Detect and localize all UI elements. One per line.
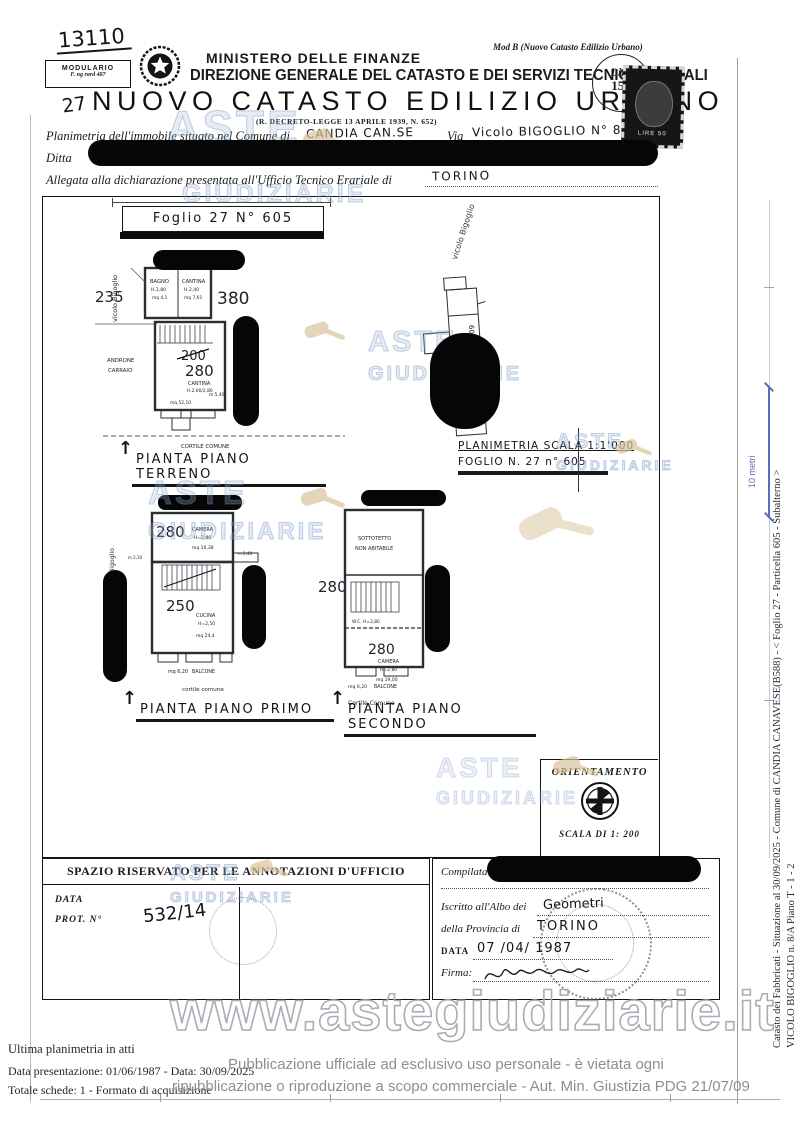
- handwritten-page-number: 27: [61, 92, 88, 117]
- ground-androne1: ANDRONE: [107, 358, 135, 364]
- redaction-blob: [430, 333, 500, 429]
- ground-room1-mq: mq 4,1: [152, 295, 168, 301]
- first-floor-plan: vicolo Bigoglio 280 CAMERA H=2,80 mq 16,…: [100, 495, 330, 710]
- data-label: DATA: [55, 895, 83, 905]
- compass-icon: [579, 780, 621, 822]
- plan-ref-line2: FOGLIO N. 27 n° 605: [458, 456, 634, 468]
- orientamento-label: ORIENTAMENTO: [541, 767, 658, 778]
- second-label-arrow: ↑: [330, 688, 345, 709]
- first-balcone: BALCONE: [192, 669, 215, 675]
- first-room1-h: H=2,80: [194, 535, 211, 541]
- ground-dim-left: 235: [95, 288, 124, 306]
- foglio-header-bar: [120, 232, 324, 239]
- ministry-title: MINISTERO DELLE FINANZE: [206, 50, 421, 66]
- ground-room2-mq: mq 7,61: [184, 295, 202, 301]
- sidebar-line1: Catasto dei Fabbricati - Situazione al 3…: [772, 56, 783, 1118]
- republic-emblem-icon: [138, 44, 182, 88]
- plan-reference-box: PLANIMETRIA SCALA 1:1'000 FOGLIO N. 27 n…: [458, 440, 634, 475]
- second-dim-left: 280: [318, 578, 347, 596]
- second-floor-label: PIANTA PIANO SECONDO: [344, 702, 536, 737]
- first-value2: 250: [166, 597, 195, 615]
- prot-value-handwritten: 532/14: [142, 900, 207, 928]
- ground-cortile: CORTILE COMUNE: [181, 444, 230, 450]
- ground-room3: CANTINA: [188, 381, 211, 387]
- modulario-sub: F. ng rard 487: [46, 72, 130, 78]
- scale-bar-label: 10 metri: [747, 428, 757, 488]
- second-wc: W.C. H=2,80: [352, 619, 380, 625]
- ground-floor-plan: vicolo Bigoglio 235 BAGNO H.2,80 mq 4,1 …: [95, 240, 355, 470]
- first-room1-mq: mq 16,38: [192, 545, 214, 551]
- second-floor-plan: 280 SOTTOTETTO NON ABITABILE W.C. H=2,80…: [318, 490, 518, 720]
- second-room: CAMERA: [378, 659, 400, 665]
- first-room2-mq: mq 24,4: [196, 633, 215, 639]
- ditta-label: Ditta: [46, 151, 72, 166]
- second-room-mq: mq 19,00: [376, 677, 398, 683]
- stamp-portrait: [634, 81, 673, 128]
- compilata-redaction: [487, 856, 701, 882]
- first-redaction-left: [103, 570, 127, 682]
- foglio-header-box: Foglio 27 N° 605: [122, 206, 324, 232]
- ground-dim-right: 380: [217, 289, 249, 309]
- second-attic1: SOTTOTETTO: [358, 536, 391, 542]
- ground-floor-label: PIANTA PIANO TERRENO: [132, 452, 326, 487]
- watermark-url: www.astegiudiziarie.it: [170, 978, 775, 1043]
- second-redaction-top: [361, 490, 446, 506]
- revenue-stamp: LIRE 50: [621, 65, 685, 149]
- first-cortile: cortile comune: [182, 687, 224, 693]
- allegata-label: Allegata alla dichiarazione presentata a…: [46, 173, 392, 188]
- mod-b-note: Mod B (Nuovo Catasto Edilizio Urbano): [493, 42, 643, 52]
- first-value1: 280: [156, 523, 185, 541]
- column-divider-line: [737, 58, 738, 1104]
- faint-office-stamp: [209, 897, 277, 965]
- first-redaction-right: [242, 565, 266, 649]
- footer-overlay1: Pubblicazione ufficiale ad esclusivo uso…: [228, 1056, 664, 1073]
- first-room2-h: H=2,50: [198, 621, 215, 627]
- stamp-text: LIRE 50: [624, 130, 680, 137]
- footer-line1: Ultima planimetria in atti: [8, 1042, 135, 1057]
- allegata-rule: [425, 172, 658, 187]
- ground-label-arrow: ↑: [118, 438, 133, 459]
- annotations-title: SPAZIO RISERVATO PER LE ANNOTAZIONI D'UF…: [43, 859, 429, 885]
- second-attic2: NON ABITABILE: [355, 546, 393, 552]
- compiled-data-label: DATA: [441, 946, 469, 956]
- provincia-label: della Provincia di: [441, 923, 520, 935]
- first-dim-left: m 2,10: [128, 555, 143, 560]
- ground-room2-h: H.2,40: [184, 287, 199, 293]
- footer-overlay2: ripubblicazione o riproduzione a scopo c…: [172, 1078, 750, 1095]
- first-room1: CAMERA: [192, 527, 214, 533]
- second-balcone-mq: mq 6,20: [348, 684, 367, 690]
- sidebar-line2: VICOLO BIGOGLIO n. 8/A Piano T - 1 - 2: [786, 56, 797, 1118]
- ground-room3-mq: mq 52,10: [170, 400, 191, 406]
- first-redaction-top: [158, 495, 242, 510]
- footer-line2: Data presentazione: 01/06/1987 - Data: 3…: [8, 1064, 254, 1079]
- foglio-dim-tick-l: [112, 198, 113, 207]
- modulario-box: MODULARIO F. ng rard 487: [45, 60, 131, 88]
- foglio-dim-line: [112, 202, 330, 203]
- sidebar-caption: Catasto dei Fabbricati - Situazione al 3…: [772, 56, 797, 1118]
- foglio-header-text: Foglio 27 N° 605: [153, 211, 293, 226]
- foglio-dim-tick-r: [330, 198, 331, 207]
- handwritten-sheet-number: 13110: [55, 23, 131, 54]
- first-balcone-mq: mq 6,20: [168, 669, 188, 675]
- sidebar-ruler-line: [769, 200, 770, 858]
- prot-label: PROT. N°: [55, 915, 102, 925]
- ground-androne2: CARRAIO: [108, 368, 132, 374]
- ditta-redaction: [88, 140, 658, 166]
- scale-bar-10m: [768, 388, 770, 518]
- ground-redaction-right: [233, 316, 259, 426]
- orientation-box: ORIENTAMENTO SCALA DI 1: 200: [540, 759, 658, 856]
- first-room2: CUCINA: [196, 613, 216, 619]
- plan-ref-line1: PLANIMETRIA SCALA 1:1'000: [458, 440, 634, 452]
- first-floor-label: PIANTA PIANO PRIMO: [136, 702, 334, 722]
- second-value: 280: [368, 642, 395, 658]
- first-label-arrow: ↑: [122, 688, 137, 709]
- scale-label: SCALA DI 1: 200: [541, 829, 658, 839]
- ground-room2: CANTINA: [182, 279, 206, 285]
- ground-room1: BAGNO: [150, 279, 169, 285]
- ground-room3-dim: m 5,40: [209, 392, 225, 398]
- ground-room1-h: H.2,80: [151, 287, 166, 293]
- ground-value-new: 280: [185, 362, 214, 380]
- cadastral-document-page: 13110 MODULARIO F. ng rard 487 Mod B (Nu…: [0, 0, 812, 1125]
- second-balcone: BALCONE: [374, 684, 397, 690]
- second-room-h: H=2,80: [380, 667, 397, 673]
- ground-redaction-top: [153, 250, 245, 270]
- scan-edge-left: [30, 115, 31, 1102]
- compilata-rule: [441, 887, 709, 889]
- second-redaction-right: [425, 565, 450, 652]
- modulario-label: MODULARIO: [46, 65, 130, 72]
- iscritto-label: Iscritto all'Albo dei: [441, 901, 526, 913]
